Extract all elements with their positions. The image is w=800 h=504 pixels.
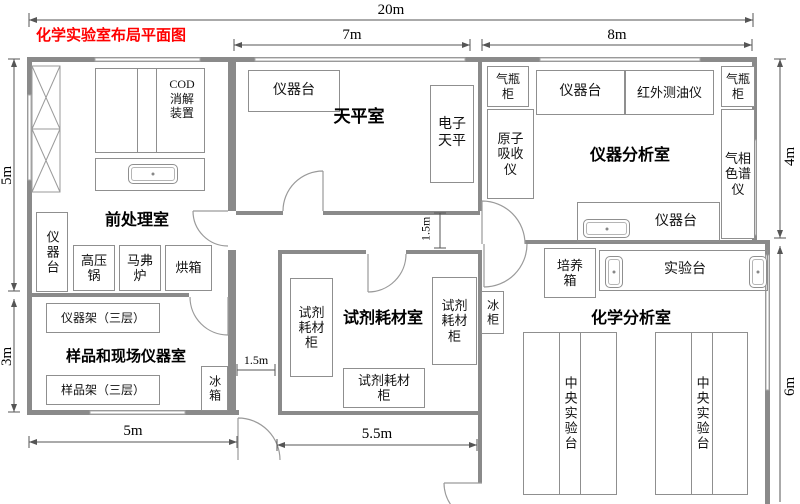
reagent-cabinet-right: 试剂 耗材 柜	[432, 277, 477, 365]
dim-balance-width: 7m	[332, 27, 372, 43]
door-balance-room	[283, 171, 323, 211]
muffle-furnace: 马弗 炉	[119, 245, 161, 291]
dim-pretreat-height: 5m	[0, 155, 15, 195]
dim-corridor-width: 1.5m	[234, 353, 278, 367]
door-instrument-room	[482, 201, 525, 244]
central-bench-right-side	[712, 332, 748, 495]
dim-reagent-width: 5.5m	[355, 425, 399, 443]
central-bench-left-side	[523, 332, 560, 495]
dim-corridor-height: 1.5m	[419, 207, 433, 251]
freezer: 冰柜	[481, 291, 504, 334]
lab-bench-label: 实验台	[645, 259, 725, 281]
dim-instrument-width: 8m	[597, 27, 637, 43]
instrument-bench: 仪器台	[36, 212, 68, 292]
refrigerator: 冰箱	[201, 366, 228, 411]
door-chemical-south	[444, 483, 482, 504]
electronic-balance: 电子 天平	[430, 85, 474, 183]
instrument-bench-top: 仪器台	[536, 70, 625, 115]
room-label-instrument: 仪器分析室	[580, 143, 680, 163]
sample-rack: 样品架（三层）	[46, 375, 160, 405]
room-label-reagent: 试剂耗材室	[333, 306, 433, 326]
page-title: 化学实验室布局平面图	[36, 24, 186, 45]
dim-sample-width: 5m	[113, 423, 153, 440]
autoclave: 高压 锅	[73, 245, 115, 291]
central-bench-left-side	[580, 332, 617, 495]
cod-digestion-unit: COD 消解 装置	[160, 72, 204, 126]
instrument-bench-bottom-label: 仪器台	[637, 210, 715, 234]
door-chemical-room	[484, 244, 527, 287]
drying-oven: 烘箱	[165, 245, 212, 291]
dim-chemical-height: 6m	[783, 366, 798, 406]
door-sample-room	[190, 297, 228, 335]
sink-icon	[749, 256, 767, 288]
reagent-cabinet-bottom: 试剂耗材 柜	[343, 368, 425, 408]
atomic-absorption-spectrometer: 原子 吸收 仪	[487, 109, 534, 199]
instrument-rack: 仪器架（三层）	[46, 303, 160, 333]
sink-icon	[605, 256, 623, 288]
room-label-pretreatment: 前处理室	[87, 208, 187, 228]
floorplan: 化学实验室布局平面图 20m 7m 8m 5m 3m 4m 6m 5m 5.5m…	[0, 0, 800, 504]
dim-instrument-height: 4m	[783, 136, 798, 176]
central-lab-bench-right: 中央实验台	[691, 332, 713, 495]
fume-channel	[137, 68, 157, 153]
infrared-oil-analyzer: 红外测油仪	[625, 70, 714, 115]
door-main-entrance	[238, 418, 280, 460]
room-label-chemical: 化学分析室	[581, 306, 681, 326]
door-reagent-room	[368, 254, 406, 292]
gas-cylinder-cabinet-left: 气瓶 柜	[487, 66, 529, 107]
dim-total-width: 20m	[371, 2, 411, 18]
reagent-cabinet-left: 试剂 耗材 柜	[290, 278, 333, 377]
room-label-balance: 天平室	[319, 103, 399, 125]
sink-icon	[583, 219, 630, 238]
central-lab-bench-left: 中央实验台	[559, 332, 581, 495]
dim-sample-height: 3m	[0, 336, 15, 376]
gas-cylinder-cabinet-right: 气瓶 柜	[721, 66, 755, 107]
x-shelf-cabinet	[32, 66, 60, 192]
central-bench-right-side	[655, 332, 692, 495]
incubator: 培养 箱	[544, 248, 596, 298]
door-pretreatment	[193, 211, 228, 246]
room-label-sample: 样品和现场仪器室	[46, 345, 206, 365]
sink-icon	[128, 164, 178, 184]
gas-chromatograph: 气相 色谱 仪	[721, 109, 755, 239]
